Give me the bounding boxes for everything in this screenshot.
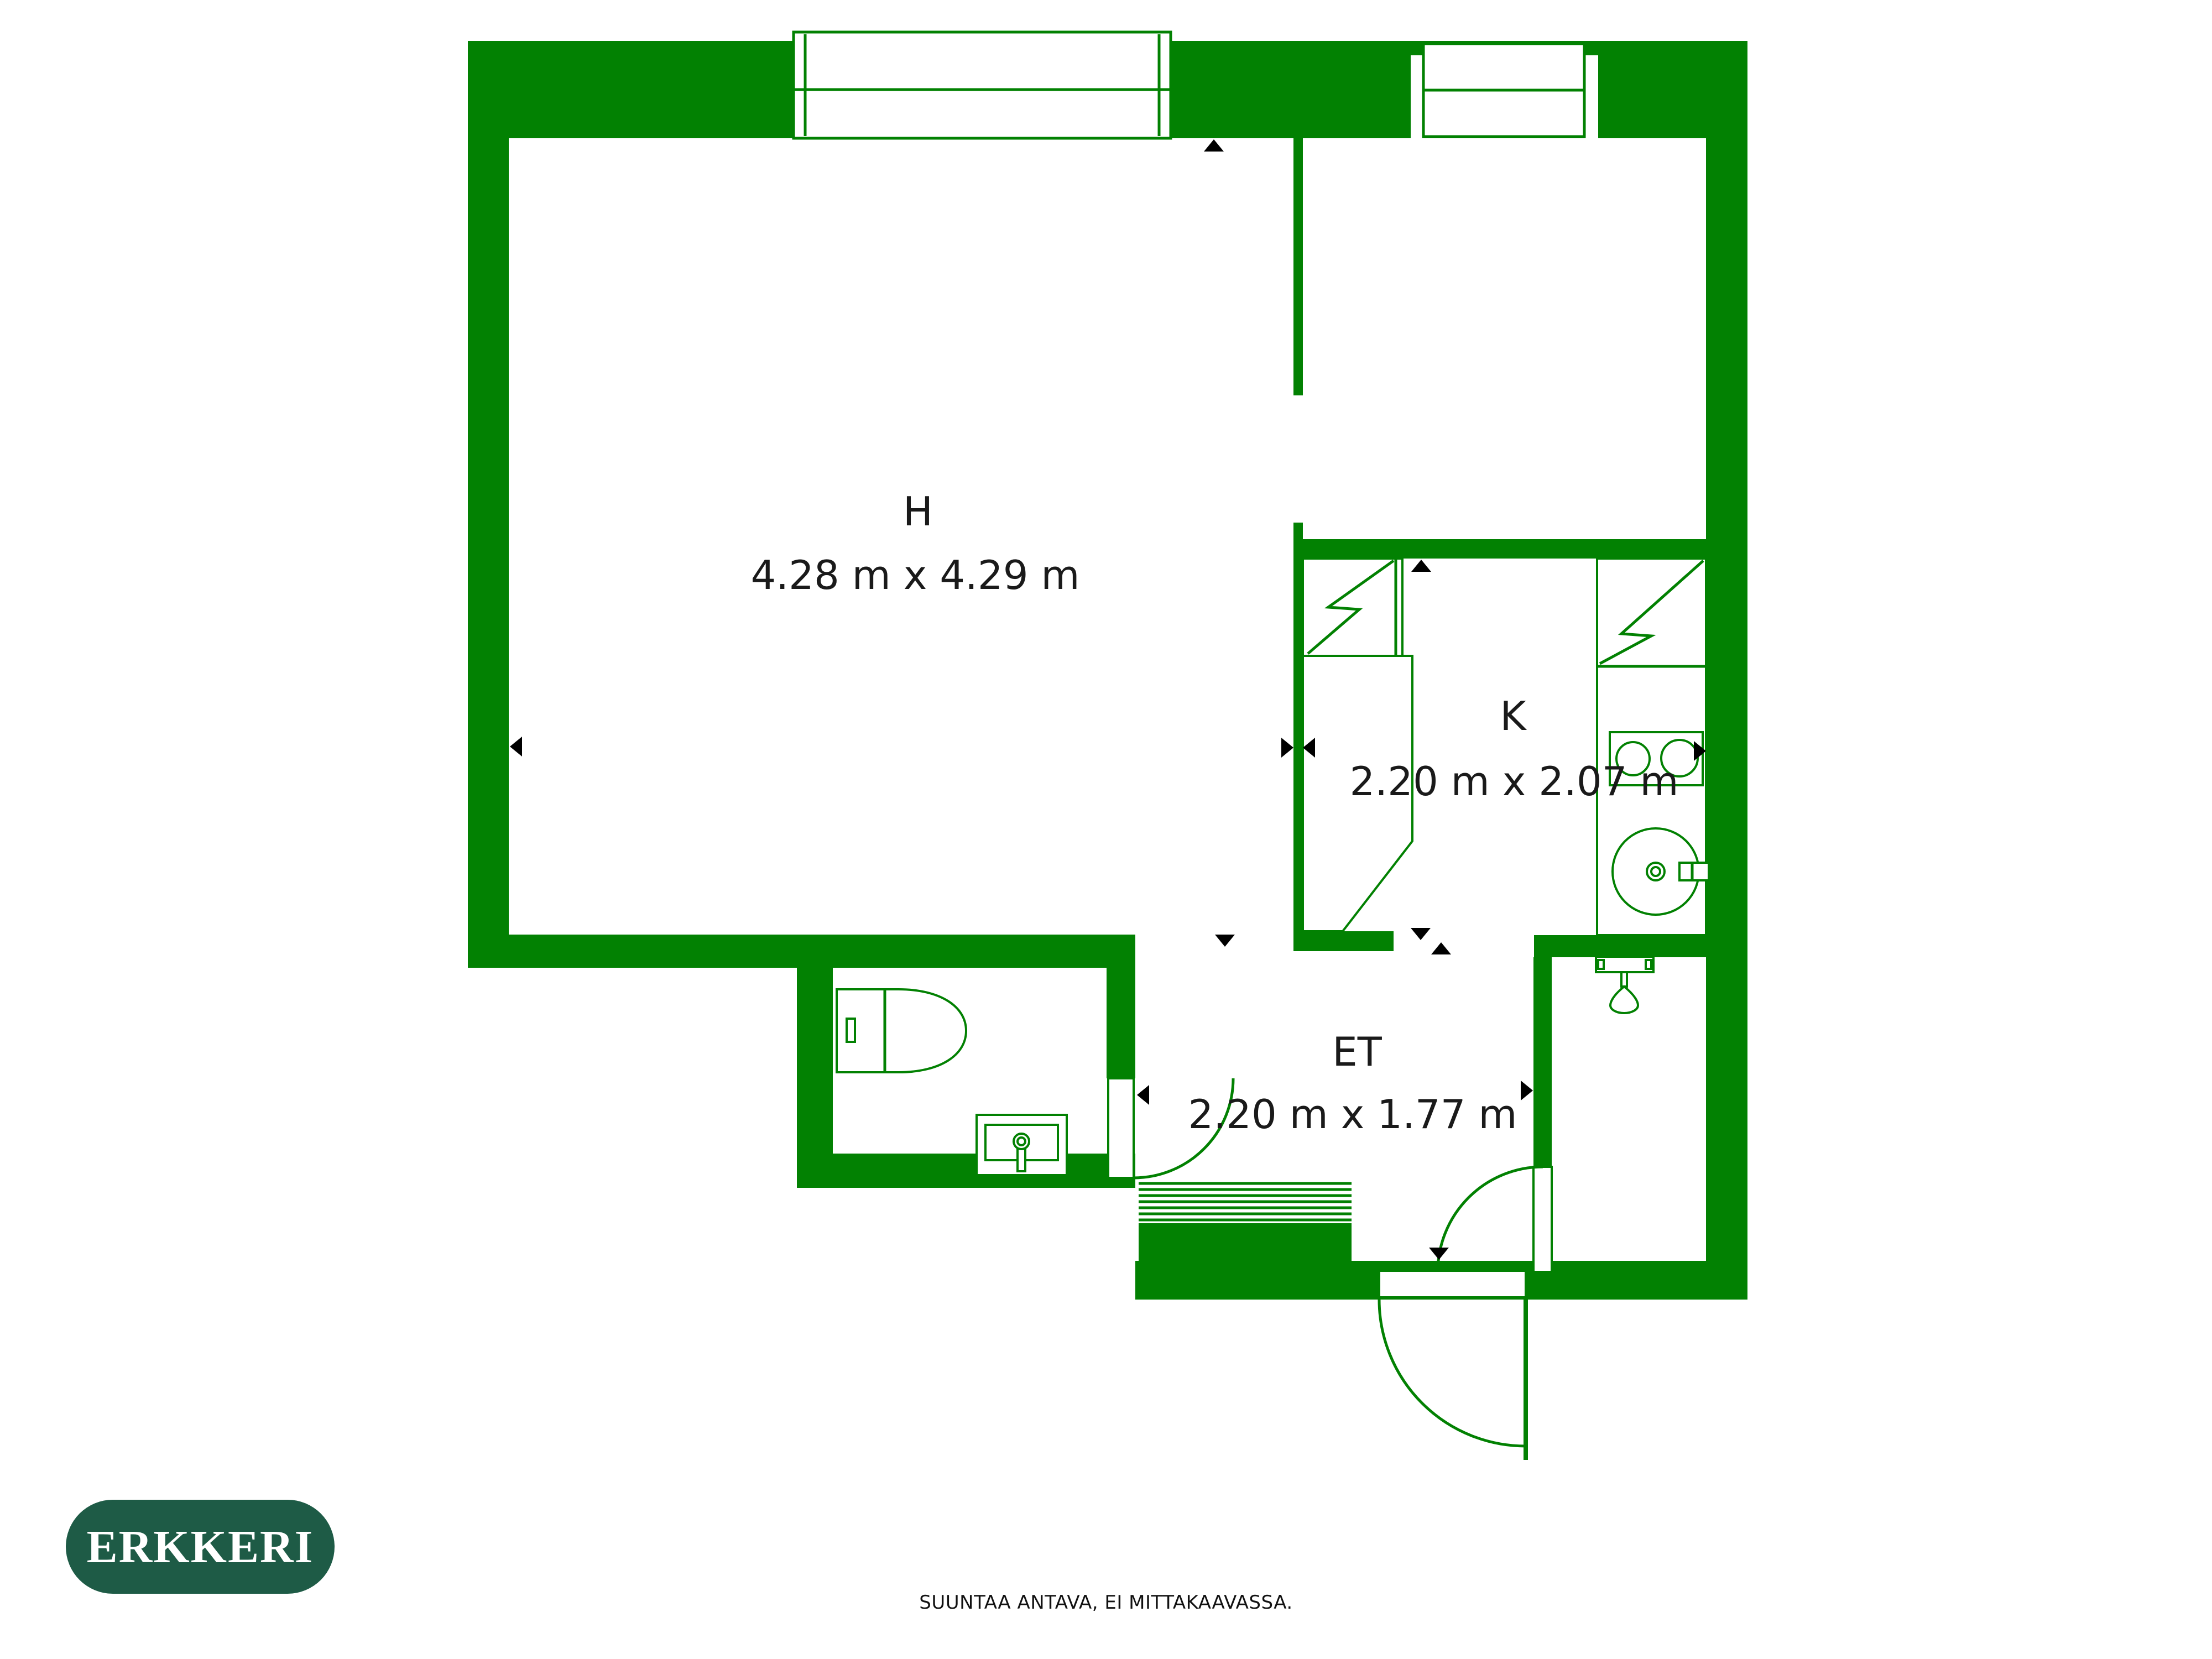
floor-plan-page: H 4.28 m x 4.29 m K 2.20 m x 2.07 m ET 2… <box>0 0 2212 1659</box>
erkkeri-logo-text: ERKKERI <box>87 1520 314 1574</box>
toilet-icon <box>837 989 966 1072</box>
disclaimer-text: SUUNTAA ANTAVA, EI MITTAKAAVASSA. <box>0 1592 2212 1614</box>
floor-plan-drawing <box>0 0 2212 1659</box>
room-dimensions-h: 4.28 m x 4.29 m <box>750 555 1079 595</box>
room-label-et: ET <box>1332 1032 1381 1072</box>
bathroom-sink-icon <box>977 1115 1067 1175</box>
stairs-icon <box>1139 1183 1352 1220</box>
shower-icon <box>1596 957 1653 1013</box>
room-label-k: K <box>1500 696 1526 736</box>
room-label-h: H <box>903 492 933 531</box>
room-dimensions-et: 2.20 m x 1.77 m <box>1188 1094 1517 1134</box>
room-dimensions-k: 2.20 m x 2.07 m <box>1349 761 1678 801</box>
kitchen-cabinet-left <box>1303 559 1412 931</box>
erkkeri-logo: ERKKERI <box>66 1500 335 1594</box>
window-icon <box>1411 44 1598 138</box>
window-icon <box>794 32 1171 138</box>
door-swing-icon <box>1438 1167 1552 1272</box>
